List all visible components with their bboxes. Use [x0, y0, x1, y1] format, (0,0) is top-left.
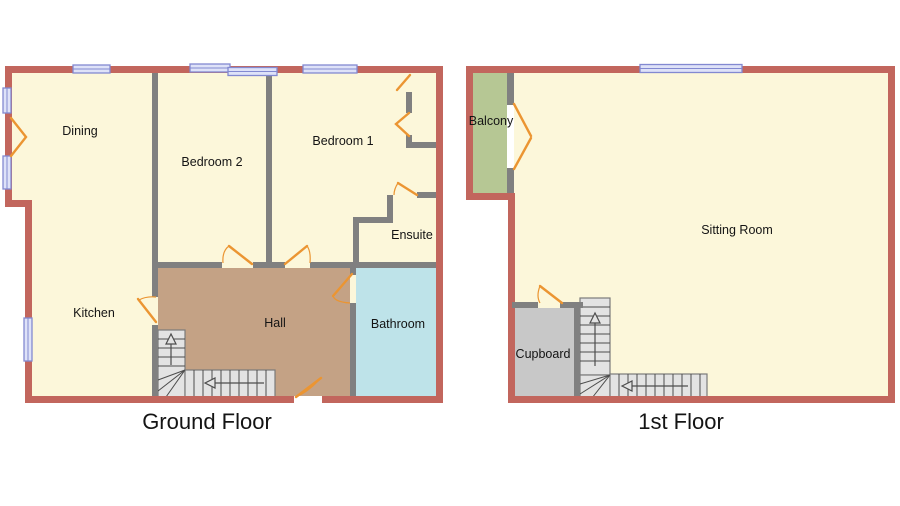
floorplan-svg: Dining Bedroom 2 Bedroom 1 Ensuite Kitch… [0, 0, 900, 506]
wall-segment [574, 302, 580, 396]
wall-segment [322, 396, 443, 403]
room-label-balcony: Balcony [469, 114, 514, 128]
wall-segment [25, 200, 32, 403]
wall-segment [466, 66, 473, 200]
first-floor-plan: Balcony Sitting Room Cupboard 1st Floor [466, 65, 895, 435]
ground-floor-plan: Dining Bedroom 2 Bedroom 1 Ensuite Kitch… [3, 64, 443, 434]
wall-segment [508, 193, 515, 403]
wall-segment [507, 168, 514, 193]
wall-segment [888, 66, 895, 403]
wall-segment [512, 302, 538, 308]
wall-segment [350, 303, 356, 396]
wall-segment [387, 195, 393, 223]
room-bathroom [356, 268, 436, 396]
wall-segment [436, 66, 443, 403]
room-label-sitting-room: Sitting Room [701, 223, 773, 237]
wall-segment [25, 396, 294, 403]
room-label-hall: Hall [264, 316, 286, 330]
wall-segment [417, 192, 436, 198]
wall-segment [158, 262, 222, 268]
room-label-ensuite: Ensuite [391, 228, 433, 242]
room-label-kitchen: Kitchen [73, 306, 115, 320]
wall-segment [266, 73, 272, 263]
room-label-cupboard: Cupboard [516, 347, 571, 361]
floor-title-ground: Ground Floor [142, 409, 272, 434]
wall-segment [406, 92, 412, 113]
wall-segment [310, 262, 436, 268]
first-windows [640, 65, 742, 73]
wall-segment [466, 193, 515, 200]
wall-segment [152, 325, 158, 396]
room-label-bathroom: Bathroom [371, 317, 425, 331]
room-label-dining: Dining [62, 124, 97, 138]
floor-title-first: 1st Floor [638, 409, 724, 434]
wall-segment [507, 73, 514, 105]
wall-segment [353, 217, 359, 263]
room-balcony [473, 73, 507, 193]
wall-segment [152, 73, 158, 297]
room-label-bedroom2: Bedroom 2 [181, 155, 242, 169]
room-label-bedroom1: Bedroom 1 [312, 134, 373, 148]
wall-segment [406, 142, 436, 148]
wall-segment [508, 396, 895, 403]
wall-segment [253, 262, 285, 268]
floorplan-canvas: Dining Bedroom 2 Bedroom 1 Ensuite Kitch… [0, 0, 900, 506]
